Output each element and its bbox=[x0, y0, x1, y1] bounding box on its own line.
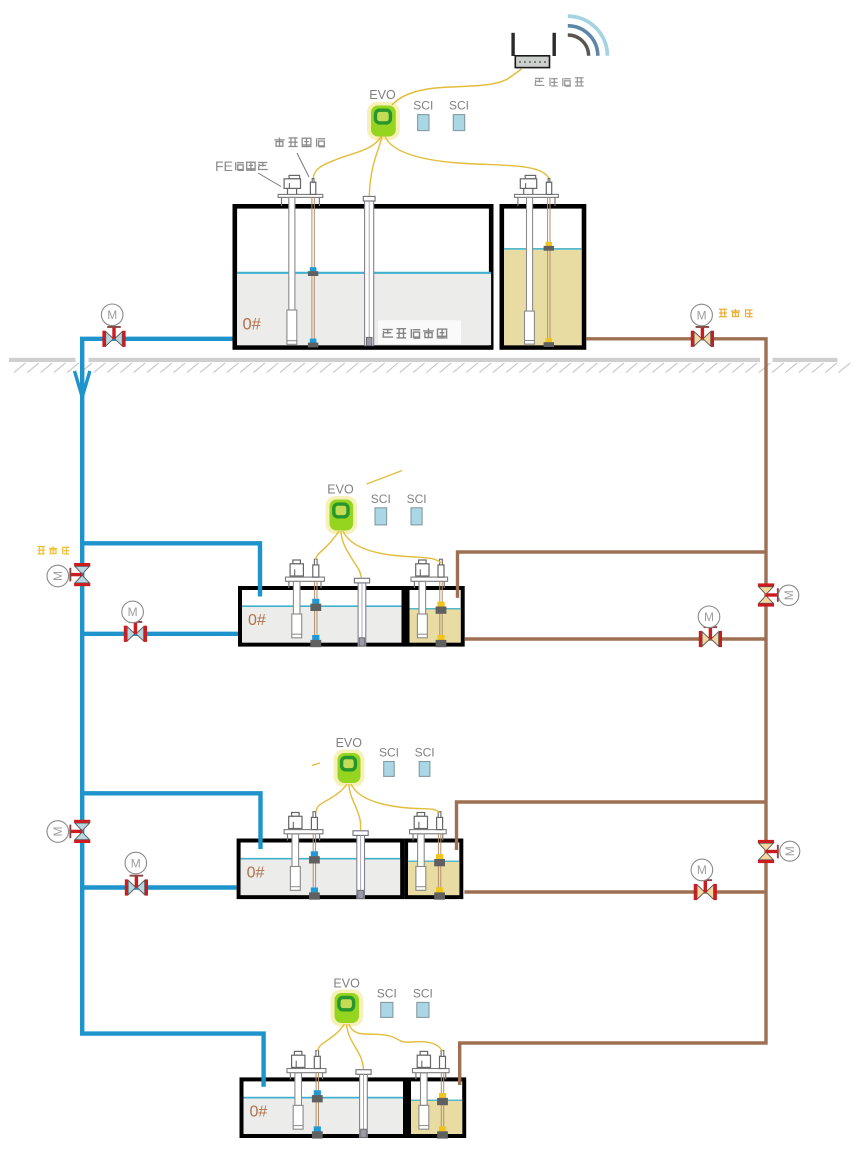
svg-text:SCI: SCI bbox=[407, 492, 427, 506]
svg-text:M: M bbox=[697, 863, 707, 877]
svg-text:FE: FE bbox=[215, 158, 233, 174]
svg-text:M: M bbox=[51, 827, 65, 837]
svg-text:M: M bbox=[128, 605, 138, 619]
svg-text:SCI: SCI bbox=[379, 746, 399, 760]
svg-text:0#: 0# bbox=[247, 865, 265, 882]
svg-text:M: M bbox=[697, 308, 707, 322]
svg-text:M: M bbox=[704, 610, 714, 624]
svg-text:M: M bbox=[131, 856, 141, 870]
svg-text:SCI: SCI bbox=[449, 98, 469, 112]
svg-text:EVO: EVO bbox=[336, 736, 363, 750]
svg-text:M: M bbox=[51, 571, 65, 581]
svg-text:0#: 0# bbox=[248, 612, 266, 629]
svg-text:M: M bbox=[782, 590, 796, 600]
svg-text:0#: 0# bbox=[243, 316, 262, 334]
svg-text:M: M bbox=[783, 846, 797, 856]
svg-text:EVO: EVO bbox=[327, 483, 354, 497]
svg-text:EVO: EVO bbox=[333, 977, 360, 991]
svg-text:SCI: SCI bbox=[413, 987, 433, 1001]
svg-text:M: M bbox=[107, 308, 117, 322]
svg-text:0#: 0# bbox=[250, 1104, 268, 1121]
svg-text:SCI: SCI bbox=[377, 987, 397, 1001]
svg-text:SCI: SCI bbox=[413, 98, 433, 112]
svg-text:EVO: EVO bbox=[369, 88, 396, 102]
svg-text:SCI: SCI bbox=[415, 746, 435, 760]
svg-text:SCI: SCI bbox=[371, 492, 391, 506]
